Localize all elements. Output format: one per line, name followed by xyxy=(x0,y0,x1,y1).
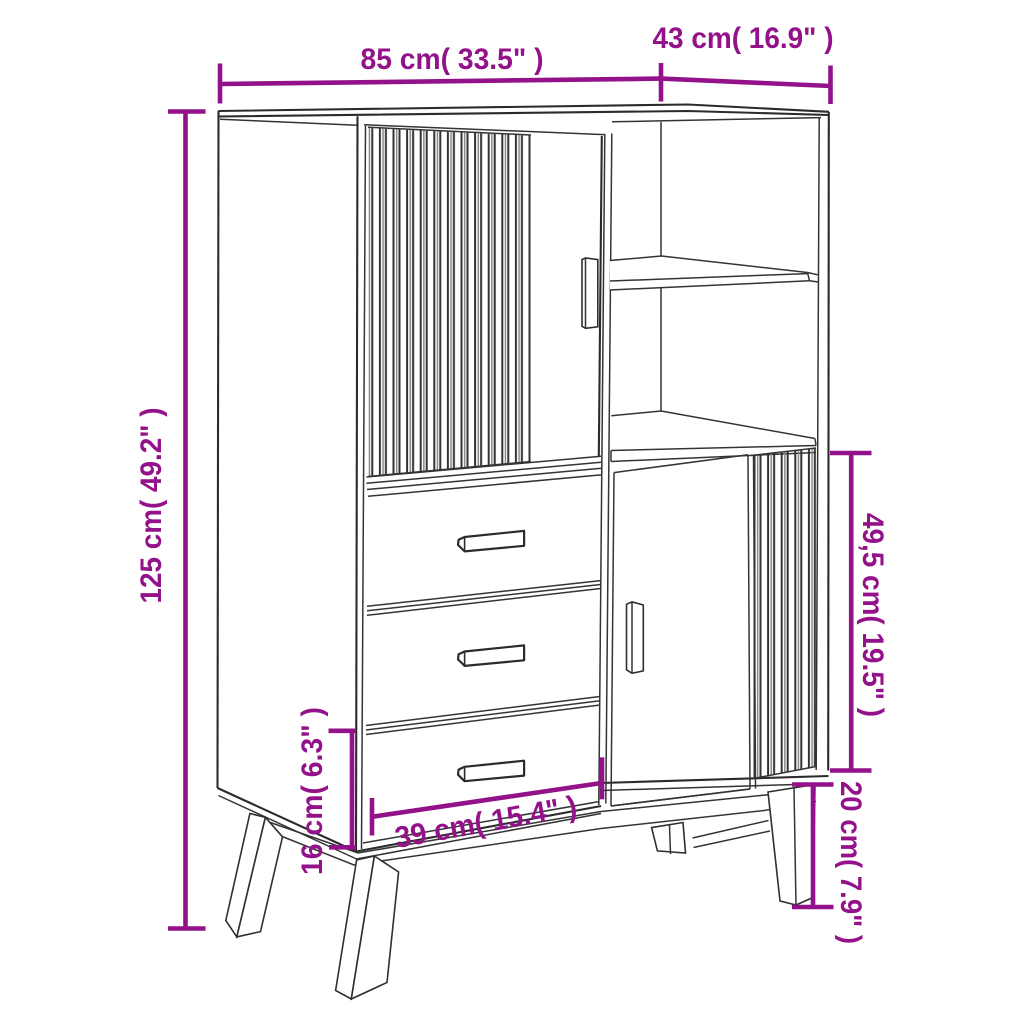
svg-text:20 cm( 7.9" ): 20 cm( 7.9" ) xyxy=(834,781,867,944)
svg-text:85 cm( 33.5" ): 85 cm( 33.5" ) xyxy=(361,43,544,76)
svg-text:43 cm( 16.9" ): 43 cm( 16.9" ) xyxy=(653,22,834,55)
svg-text:49,5 cm( 19.5" ): 49,5 cm( 19.5" ) xyxy=(856,513,889,717)
svg-text:16 cm( 6.3" ): 16 cm( 6.3" ) xyxy=(296,707,329,875)
svg-text:125 cm( 49.2" ): 125 cm( 49.2" ) xyxy=(135,408,168,604)
